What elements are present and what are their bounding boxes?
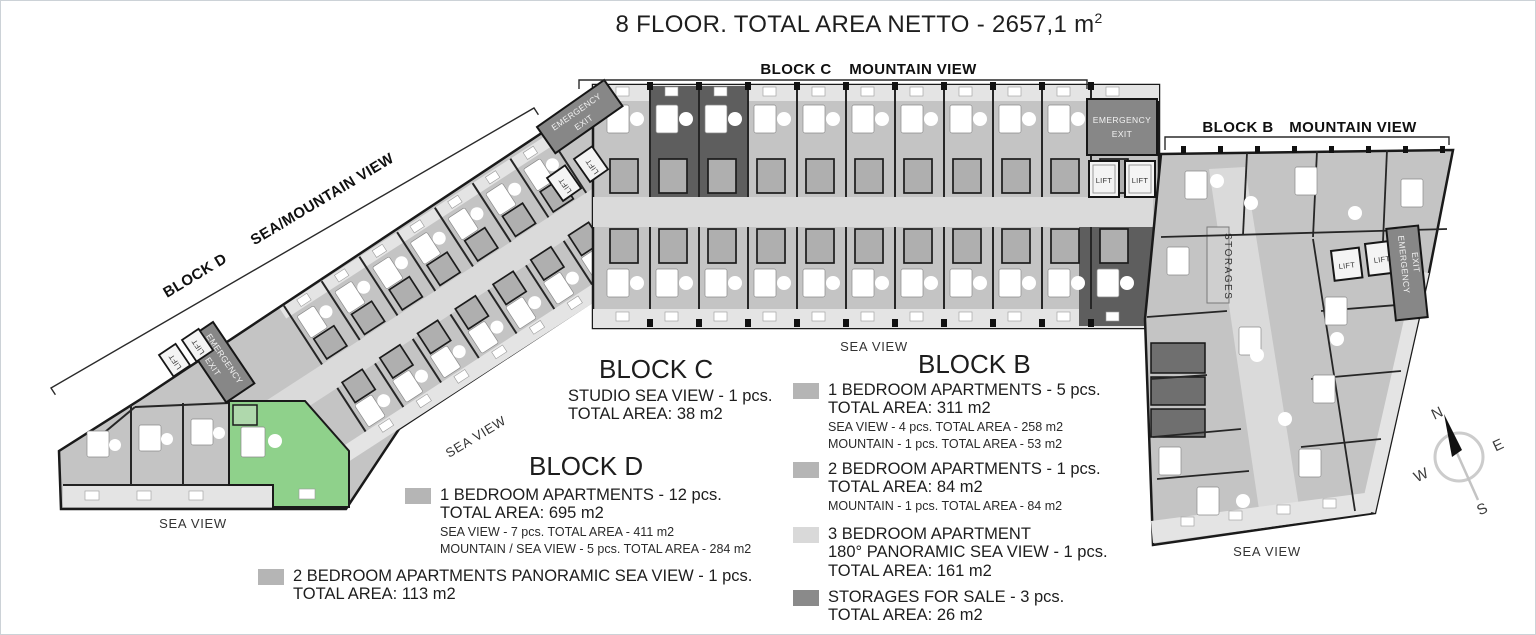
legend-swatch (258, 569, 284, 585)
block-d-banner-name: BLOCK D (160, 250, 230, 301)
legend-c-line2: TOTAL AREA: 38 m2 (568, 405, 772, 423)
legend-line: TOTAL AREA: 84 m2 (828, 478, 1101, 496)
lift-box: LIFT (1331, 248, 1362, 281)
page-title: 8 FLOOR. TOTAL AREA NETTO - 2657,1 m2 (615, 10, 1102, 39)
floor-plan-page: EMERGENCY EXIT LIFT LIFT EMERGENCY EXIT (0, 0, 1536, 635)
legend-swatch (793, 527, 819, 543)
emergency-exit-label: EMERGENCY (1093, 115, 1151, 125)
legend-b-item-2bedroom: 2 BEDROOM APARTMENTS - 1 pcs. TOTAL AREA… (793, 460, 1101, 514)
legend-swatch (793, 462, 819, 478)
sea-view-label-d-diagonal: SEA VIEW (443, 413, 509, 461)
block-c-banner-view: MOUNTAIN VIEW (849, 61, 977, 78)
block-c-building: EMERGENCY EXIT LIFT LIFT EMERGENCY EXIT … (537, 80, 1159, 328)
legend-line: 3 BEDROOM APARTMENT (828, 525, 1108, 543)
block-b-building: STORAGES LIFT LIFT EMERGENCY EXIT (1145, 146, 1453, 545)
legend-b-item-1bedroom: 1 BEDROOM APARTMENTS - 5 pcs. TOTAL AREA… (793, 381, 1101, 452)
legend-b-heading: BLOCK B (918, 349, 1031, 380)
page-title-text: 8 FLOOR. TOTAL AREA NETTO - 2657,1 m (615, 11, 1094, 38)
storages-label: STORAGES (1222, 233, 1233, 300)
legend-d-heading: BLOCK D (529, 451, 643, 482)
emergency-exit-label: EXIT (1410, 252, 1422, 273)
legend-line: STORAGES FOR SALE - 3 pcs. (828, 588, 1064, 606)
lift-label: LIFT (1132, 176, 1149, 185)
legend-swatch (793, 590, 819, 606)
legend-swatch (405, 488, 431, 504)
page-title-sup: 2 (1094, 10, 1102, 26)
legend-d-item-2bedroom: 2 BEDROOM APARTMENTS PANORAMIC SEA VIEW … (258, 567, 752, 604)
compass-w: W (1411, 464, 1432, 486)
lift-label: LIFT (1096, 176, 1113, 185)
legend-line: TOTAL AREA: 26 m2 (828, 606, 1064, 624)
legend-line: 2 BEDROOM APARTMENTS - 1 pcs. (828, 460, 1101, 478)
legend-swatch (793, 383, 819, 399)
legend-line: TOTAL AREA: 113 m2 (293, 585, 752, 603)
legend-subline: MOUNTAIN - 1 pcs. TOTAL AREA - 53 m2 (828, 437, 1101, 452)
emergency-exit-banner-c-right: EMERGENCY EXIT (1087, 99, 1157, 155)
block-c-corridor (593, 197, 1153, 227)
sea-view-label-c: SEA VIEW (840, 339, 908, 354)
legend-line: 1 BEDROOM APARTMENTS - 5 pcs. (828, 381, 1101, 399)
legend-line: 2 BEDROOM APARTMENTS PANORAMIC SEA VIEW … (293, 567, 752, 585)
legend-line: TOTAL AREA: 311 m2 (828, 399, 1101, 417)
compass-n: N (1429, 403, 1446, 423)
legend-subline: SEA VIEW - 4 pcs. TOTAL AREA - 258 m2 (828, 420, 1101, 435)
block-d-banner-view: SEA/MOUNTAIN VIEW (248, 150, 398, 249)
legend-line: TOTAL AREA: 161 m2 (828, 562, 1108, 580)
block-d-building: EMERGENCY EXIT LIFT LIFT (59, 89, 659, 509)
lift-box: LIFT (1089, 161, 1119, 197)
legend-b-item-storages: STORAGES FOR SALE - 3 pcs. TOTAL AREA: 2… (793, 588, 1064, 625)
block-b-banner-name: BLOCK B (1202, 119, 1273, 136)
legend-c-heading: BLOCK C (599, 354, 713, 385)
block-b-storages (1151, 343, 1205, 437)
legend-line: 180° PANORAMIC SEA VIEW - 1 pcs. (828, 543, 1108, 561)
legend-subline: MOUNTAIN / SEA VIEW - 5 pcs. TOTAL AREA … (440, 542, 751, 557)
legend-d-item-1bedroom: 1 BEDROOM APARTMENTS - 12 pcs. TOTAL ARE… (405, 486, 751, 557)
block-c-banner-name: BLOCK C (760, 61, 831, 78)
compass-e: E (1490, 436, 1506, 456)
sea-view-label-d-bottom: SEA VIEW (159, 516, 227, 531)
legend-subline: MOUNTAIN - 1 pcs. TOTAL AREA - 84 m2 (828, 499, 1101, 514)
legend-c-line1: STUDIO SEA VIEW - 1 pcs. (568, 387, 772, 405)
sea-view-label-b: SEA VIEW (1233, 544, 1301, 559)
block-b-banner-view: MOUNTAIN VIEW (1289, 119, 1417, 136)
lift-box: LIFT (1125, 161, 1155, 197)
compass-rose: N E W S (1411, 403, 1506, 519)
compass-s: S (1474, 500, 1490, 520)
svg-text:SEA VIEW: SEA VIEW (443, 413, 509, 461)
legend-line: 1 BEDROOM APARTMENTS - 12 pcs. (440, 486, 751, 504)
legend-b-item-3bedroom: 3 BEDROOM APARTMENT 180° PANORAMIC SEA V… (793, 525, 1108, 580)
legend-c-lines: STUDIO SEA VIEW - 1 pcs. TOTAL AREA: 38 … (568, 387, 772, 424)
legend-line: TOTAL AREA: 695 m2 (440, 504, 751, 522)
legend-subline: SEA VIEW - 7 pcs. TOTAL AREA - 411 m2 (440, 525, 751, 540)
emergency-exit-label: EXIT (1112, 129, 1133, 139)
floor-plan-drawing: EMERGENCY EXIT LIFT LIFT EMERGENCY EXIT (1, 1, 1536, 635)
